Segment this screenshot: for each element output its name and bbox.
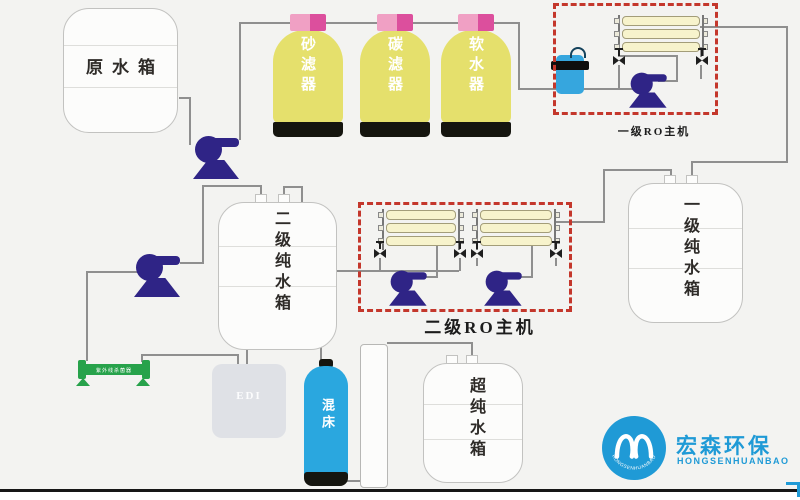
mixed-bed-label: 混床 bbox=[318, 398, 337, 432]
filter-cap-icon bbox=[377, 14, 413, 31]
company-name-en: HONGSENHUANBAO bbox=[677, 456, 790, 466]
tank-inlet-stub bbox=[255, 194, 267, 203]
pipe bbox=[189, 97, 191, 145]
mixed-bed-base bbox=[304, 472, 348, 486]
ro2-unit-boundary bbox=[358, 202, 572, 312]
pipe bbox=[387, 342, 473, 344]
tank-seam-line bbox=[64, 45, 177, 46]
pipe bbox=[86, 271, 88, 361]
pipe bbox=[786, 26, 788, 163]
pipe bbox=[518, 22, 520, 88]
filter-cap-icon bbox=[290, 14, 326, 31]
polishing-column bbox=[360, 344, 388, 488]
company-logo-icon: HONGSENHUANBAO bbox=[602, 416, 666, 485]
pipe bbox=[603, 169, 672, 171]
pipe bbox=[202, 185, 262, 187]
tank-inlet-stub bbox=[664, 175, 676, 184]
pipe bbox=[86, 271, 140, 273]
tank-inlet-stub bbox=[466, 355, 478, 364]
tank-inlet-stub bbox=[686, 175, 698, 184]
logo-graphic: HONGSENHUANBAO bbox=[602, 416, 666, 480]
pipe bbox=[141, 354, 239, 356]
ro1-unit-boundary bbox=[553, 3, 718, 115]
carbon-filter: 碳滤器 bbox=[360, 14, 430, 137]
pipe bbox=[603, 169, 605, 223]
filter-cap-icon bbox=[458, 14, 494, 31]
raw-water-pump-icon bbox=[193, 134, 241, 180]
raw-water-tank: 原水箱 bbox=[63, 8, 178, 133]
water-softener-label: 软水器 bbox=[465, 36, 486, 96]
tank-inlet-stub bbox=[446, 355, 458, 364]
carbon-filter-label: 碳滤器 bbox=[384, 36, 405, 96]
stage1-pure-water-tank-label: 一级纯水箱 bbox=[677, 196, 701, 301]
filter-base bbox=[441, 122, 511, 137]
ultra-pure-water-tank-label: 超纯水箱 bbox=[463, 377, 487, 461]
bottom-margin bbox=[0, 492, 800, 500]
pipe bbox=[283, 186, 303, 188]
edi-label: EDI bbox=[212, 390, 286, 402]
filter-base bbox=[360, 122, 430, 137]
pure-water-pump-icon bbox=[134, 252, 182, 298]
ro1-unit-label: 一级RO主机 bbox=[598, 123, 710, 139]
filter-base bbox=[273, 122, 343, 137]
pipe bbox=[691, 161, 788, 163]
bottom-border-line bbox=[0, 489, 800, 492]
ro2-unit-label: 二级RO主机 bbox=[420, 313, 540, 338]
tank-seam-line bbox=[64, 87, 177, 88]
raw-water-tank-label: 原水箱 bbox=[64, 53, 177, 78]
uv-sterilizer-icon: 紫外线杀菌器 bbox=[78, 352, 150, 384]
water-softener: 软水器 bbox=[441, 14, 511, 137]
sand-filter: 砂滤器 bbox=[273, 14, 343, 137]
uv-sterilizer-label: 紫外线杀菌器 bbox=[86, 367, 142, 374]
sand-filter-label: 砂滤器 bbox=[297, 36, 318, 96]
pipe bbox=[518, 88, 558, 90]
water-treatment-diagram: 原水箱 二级纯水箱 一级纯水箱 超纯水箱 砂滤器 碳滤器 软水器 一 bbox=[0, 0, 800, 500]
pipe bbox=[239, 24, 241, 140]
pipe bbox=[180, 262, 204, 264]
edi-module: EDI bbox=[212, 364, 286, 438]
stage2-pure-water-tank-label: 二级纯水箱 bbox=[268, 210, 292, 315]
pipe bbox=[202, 185, 204, 264]
tank-inlet-stub bbox=[278, 194, 290, 203]
